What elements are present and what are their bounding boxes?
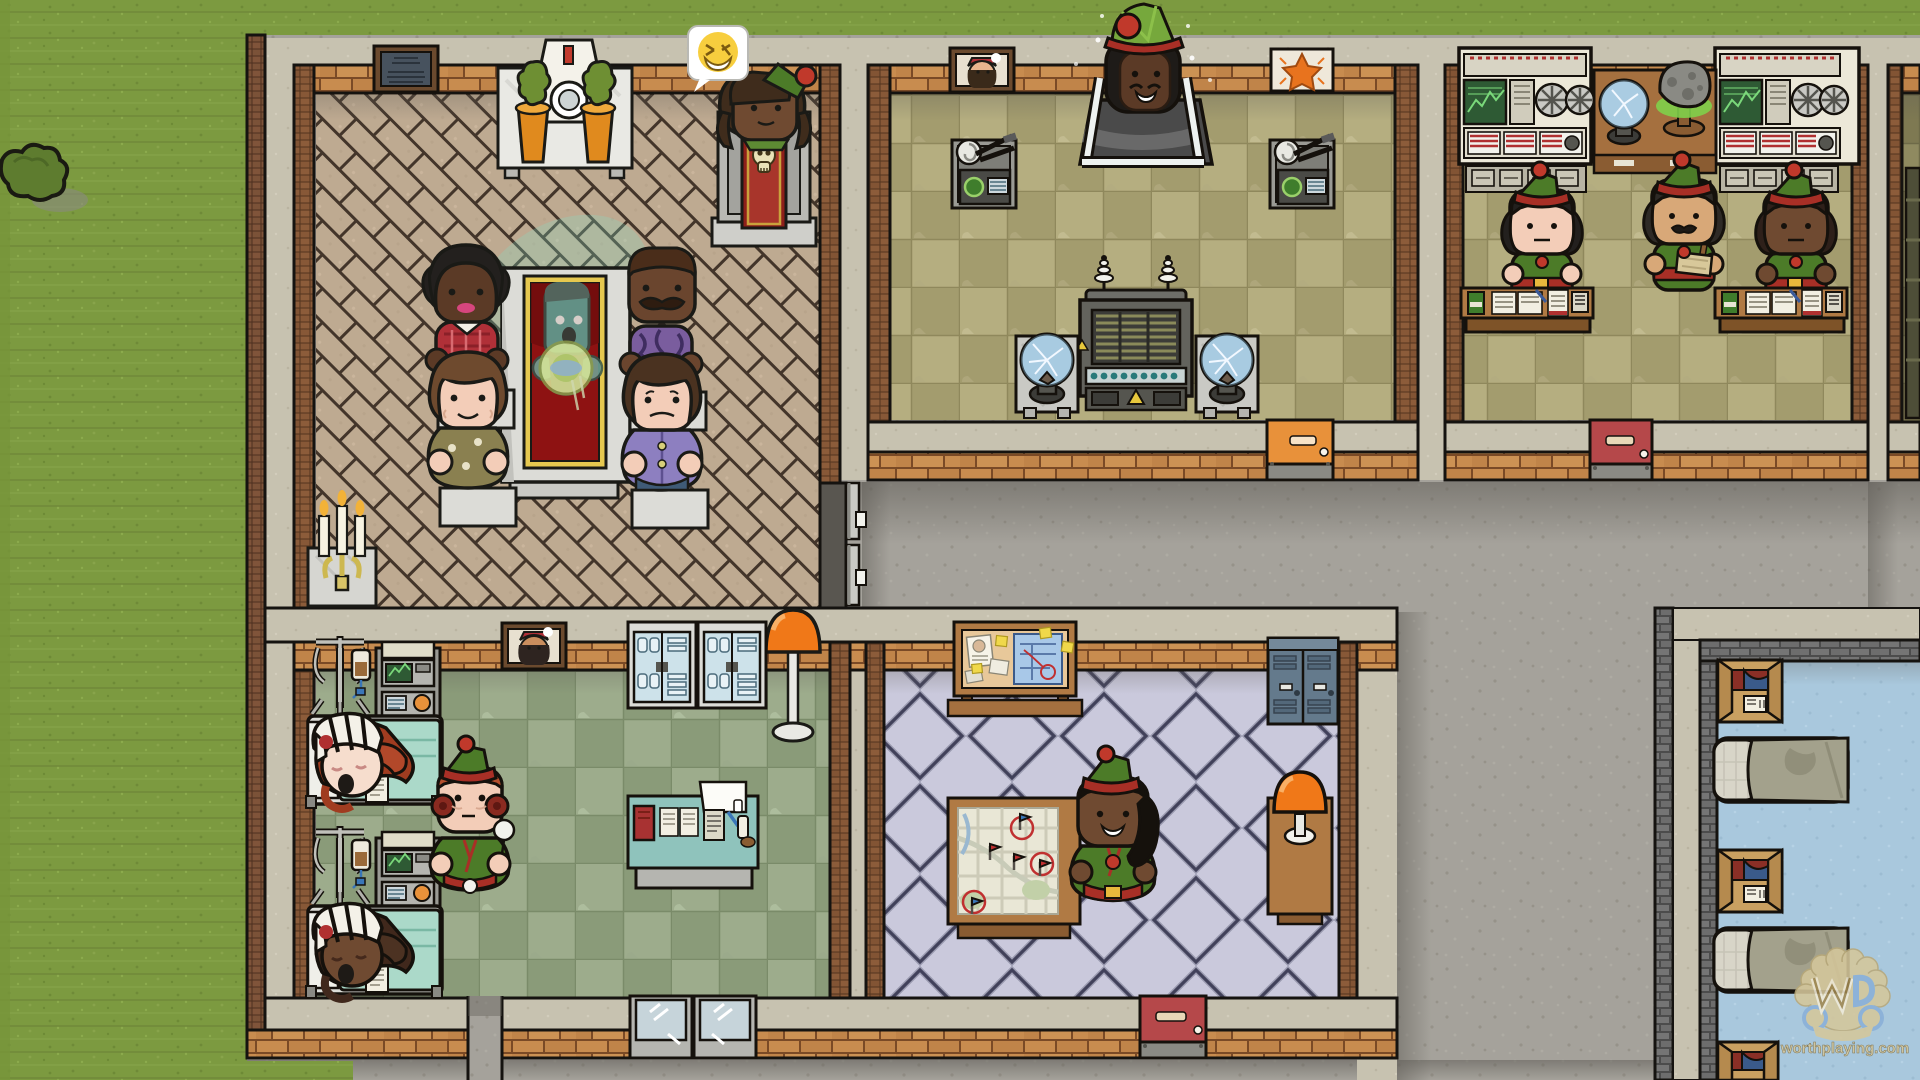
svg-text:worthplaying.com: worthplaying.com [1780,1040,1909,1057]
